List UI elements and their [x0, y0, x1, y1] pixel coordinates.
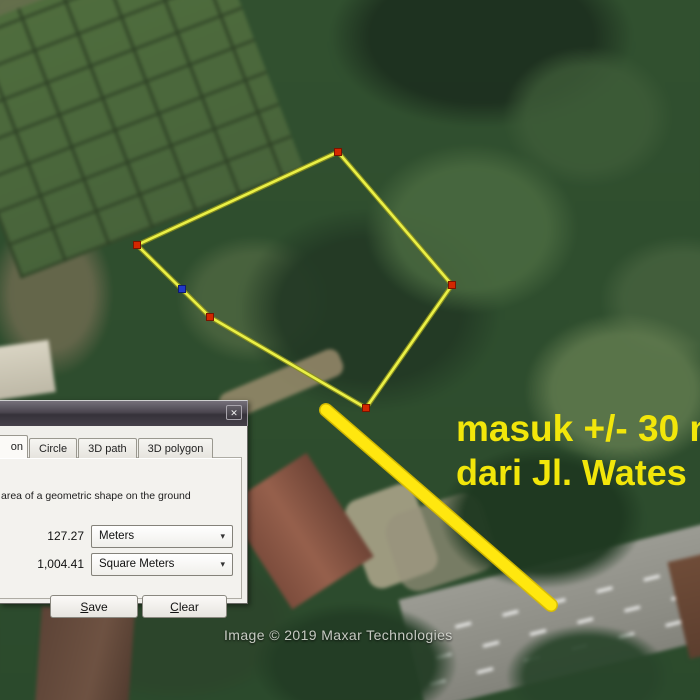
measure-polygon: [137, 152, 452, 408]
chevron-down-icon: ▾: [220, 526, 225, 547]
perimeter-unit-select[interactable]: Meters ▾: [91, 525, 233, 548]
area-value: 1,004.41: [0, 557, 84, 571]
tab-bar: on Circle 3D path 3D polygon: [0, 436, 214, 458]
annotation-line-1: masuk +/- 30 m: [456, 407, 700, 451]
polygon-vertex-marker[interactable]: [335, 149, 342, 156]
chevron-down-icon: ▾: [220, 554, 225, 575]
save-button[interactable]: Save: [50, 595, 138, 618]
dialog-description: area of a geometric shape on the ground: [1, 490, 237, 502]
map-annotation: masuk +/- 30 m dari Jl. Wates: [456, 407, 700, 495]
tab-polygon[interactable]: on: [0, 435, 28, 458]
dialog-body: on Circle 3D path 3D polygon area of a g…: [0, 426, 248, 604]
polygon-midpoint-marker[interactable]: [179, 286, 186, 293]
tab-3d-polygon[interactable]: 3D polygon: [138, 438, 214, 458]
tab-3d-path[interactable]: 3D path: [78, 438, 137, 458]
dialog-titlebar[interactable]: ✕: [0, 400, 248, 426]
perimeter-unit-label: Meters: [99, 530, 134, 542]
imagery-credit: Image © 2019 Maxar Technologies: [224, 627, 453, 643]
ruler-dialog: ✕ on Circle 3D path 3D polygon area of a…: [0, 400, 248, 604]
polygon-vertex-marker[interactable]: [449, 282, 456, 289]
close-icon[interactable]: ✕: [226, 405, 242, 420]
area-unit-select[interactable]: Square Meters ▾: [91, 553, 233, 576]
polygon-vertex-marker[interactable]: [363, 405, 370, 412]
area-unit-label: Square Meters: [99, 558, 174, 570]
polygon-vertex-marker[interactable]: [207, 314, 214, 321]
google-earth-viewport[interactable]: masuk +/- 30 m dari Jl. Wates Image © 20…: [0, 0, 700, 700]
perimeter-value: 127.27: [0, 529, 84, 543]
annotation-line-2: dari Jl. Wates: [456, 451, 700, 495]
polygon-vertex-marker[interactable]: [134, 242, 141, 249]
tab-circle[interactable]: Circle: [29, 438, 77, 458]
clear-button[interactable]: Clear: [142, 595, 227, 618]
measure-polygon-outline: [137, 152, 452, 408]
